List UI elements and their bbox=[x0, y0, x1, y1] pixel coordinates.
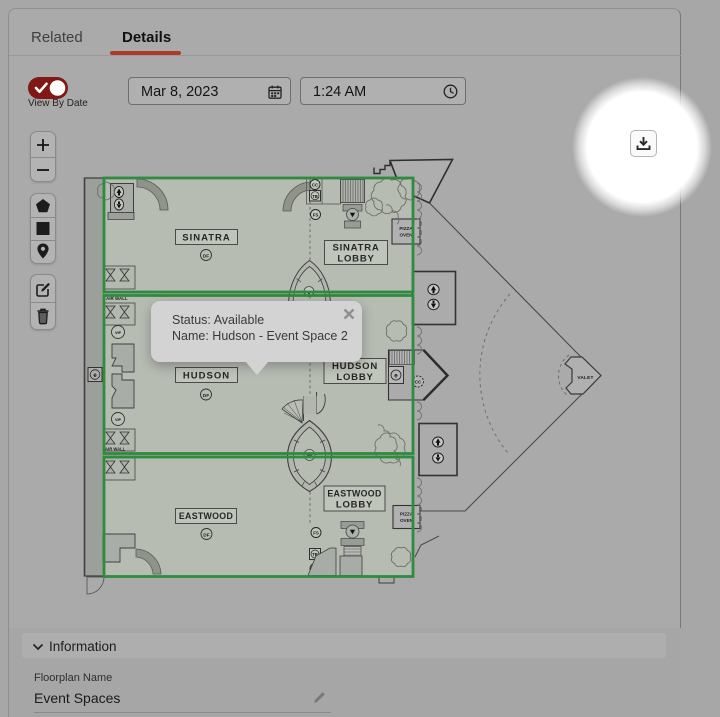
svg-text:VIP: VIP bbox=[115, 418, 122, 422]
svg-text:PIZZA: PIZZA bbox=[399, 226, 413, 231]
svg-text:CC: CC bbox=[312, 183, 319, 188]
svg-text:FS: FS bbox=[313, 531, 319, 536]
svg-text:DF: DF bbox=[203, 532, 209, 538]
svg-text:CC: CC bbox=[415, 380, 422, 385]
svg-text:OVEN: OVEN bbox=[399, 233, 413, 238]
svg-text:EASTWOOD: EASTWOOD bbox=[327, 489, 381, 499]
svg-text:e: e bbox=[394, 373, 398, 380]
svg-text:DF: DF bbox=[203, 253, 209, 259]
svg-text:LOBBY: LOBBY bbox=[337, 254, 374, 265]
svg-text:HUDSON: HUDSON bbox=[332, 361, 378, 372]
svg-text:SINATRA: SINATRA bbox=[332, 243, 379, 254]
svg-text:LOBBY: LOBBY bbox=[336, 372, 373, 383]
svg-text:LOBBY: LOBBY bbox=[336, 500, 373, 511]
svg-text:HUDSON: HUDSON bbox=[183, 371, 230, 382]
svg-text:AIR WALL: AIR WALL bbox=[105, 447, 126, 452]
svg-text:VALET: VALET bbox=[577, 375, 593, 381]
svg-text:TB: TB bbox=[312, 194, 318, 199]
svg-text:FS: FS bbox=[313, 213, 319, 218]
svg-text:SINATRA: SINATRA bbox=[182, 233, 231, 244]
svg-text:EASTWOOD: EASTWOOD bbox=[179, 511, 233, 521]
svg-text:DF: DF bbox=[203, 393, 209, 399]
svg-text:VIP: VIP bbox=[115, 331, 122, 335]
